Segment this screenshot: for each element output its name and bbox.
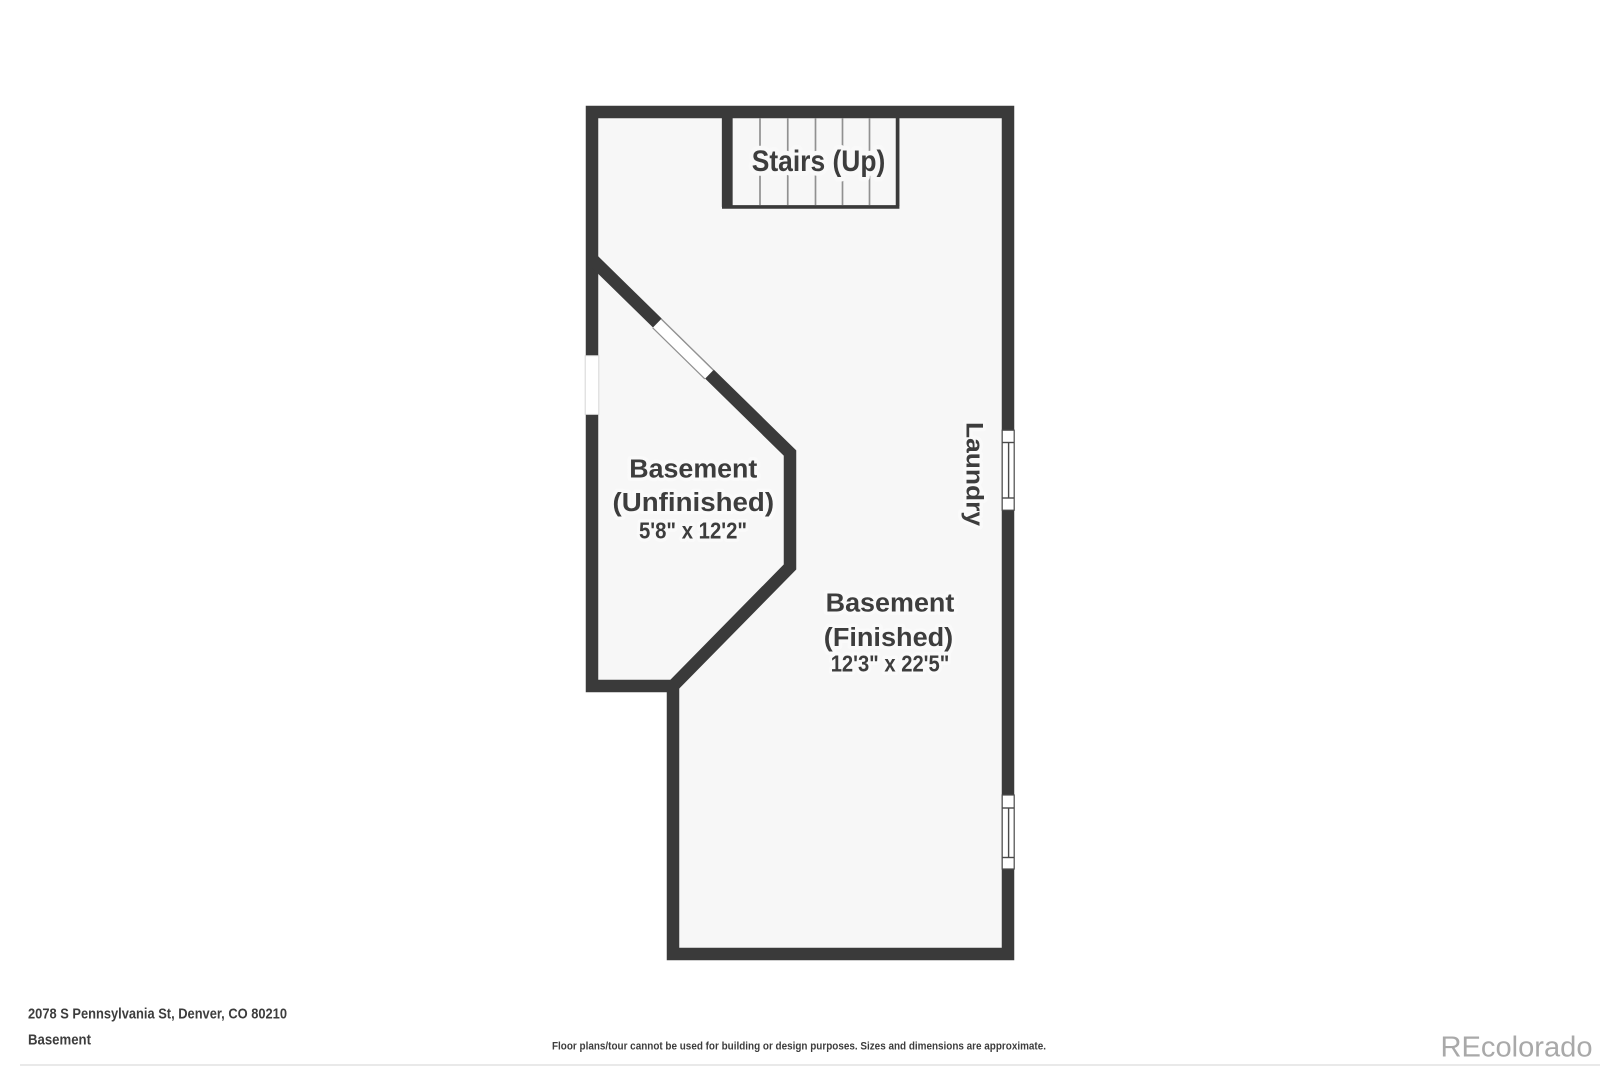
- svg-text:Floor plans/tour cannot be use: Floor plans/tour cannot be used for buil…: [552, 1040, 1046, 1052]
- svg-text:12'3" x 22'5": 12'3" x 22'5": [831, 650, 950, 676]
- svg-text:Laundry: Laundry: [961, 422, 988, 526]
- svg-text:(Unfinished): (Unfinished): [613, 489, 775, 517]
- svg-text:Basement: Basement: [826, 590, 955, 618]
- svg-text:Basement: Basement: [629, 456, 758, 484]
- svg-text:(Finished): (Finished): [824, 624, 953, 652]
- svg-text:5'8" x 12'2": 5'8" x 12'2": [639, 518, 747, 544]
- svg-text:2078 S Pennsylvania St, Denver: 2078 S Pennsylvania St, Denver, CO 80210: [28, 1007, 287, 1023]
- svg-text:Stairs (Up): Stairs (Up): [752, 145, 886, 178]
- svg-text:REcolorado: REcolorado: [1441, 1031, 1593, 1063]
- svg-text:Basement: Basement: [28, 1033, 91, 1049]
